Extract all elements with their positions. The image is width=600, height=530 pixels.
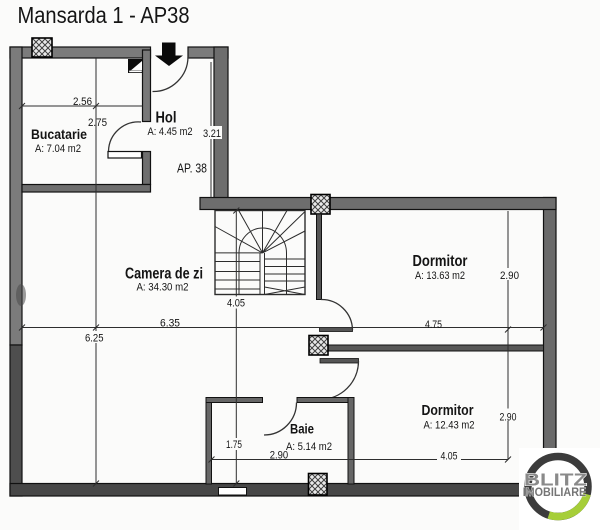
svg-text:2.90: 2.90 xyxy=(270,450,288,462)
svg-text:Camera de zi: Camera de zi xyxy=(125,266,203,283)
svg-text:4.05: 4.05 xyxy=(227,298,245,310)
svg-text:4.05: 4.05 xyxy=(441,451,458,463)
svg-text:3.21: 3.21 xyxy=(203,128,221,140)
svg-text:A: 7.04 m2: A: 7.04 m2 xyxy=(35,143,81,155)
svg-text:Mansarda 1 - AP38: Mansarda 1 - AP38 xyxy=(18,2,190,28)
svg-text:2.75: 2.75 xyxy=(88,117,107,129)
svg-text:1.75: 1.75 xyxy=(226,439,242,451)
svg-text:IMOBILIARE: IMOBILIARE xyxy=(523,487,587,499)
svg-text:4.75: 4.75 xyxy=(425,319,442,331)
svg-text:6.35: 6.35 xyxy=(160,318,180,330)
svg-text:2.90: 2.90 xyxy=(500,412,517,424)
svg-text:A: 5.14 m2: A: 5.14 m2 xyxy=(286,441,332,453)
svg-text:Dormitor: Dormitor xyxy=(422,403,474,419)
svg-text:A: 12.43 m2: A: 12.43 m2 xyxy=(424,420,475,432)
svg-text:6.25: 6.25 xyxy=(85,333,104,345)
svg-text:Hol: Hol xyxy=(156,110,177,127)
svg-text:AP. 38: AP. 38 xyxy=(177,161,207,176)
svg-text:Bucatarie: Bucatarie xyxy=(31,127,87,142)
svg-text:A: 4.45 m2: A: 4.45 m2 xyxy=(148,126,193,138)
svg-text:2.56: 2.56 xyxy=(73,96,92,108)
svg-text:A: 34.30 m2: A: 34.30 m2 xyxy=(137,282,189,294)
svg-text:Dormitor: Dormitor xyxy=(413,253,468,270)
svg-text:2.90: 2.90 xyxy=(500,270,519,282)
svg-text:Baie: Baie xyxy=(290,422,314,437)
svg-text:A: 13.63 m2: A: 13.63 m2 xyxy=(415,270,465,282)
